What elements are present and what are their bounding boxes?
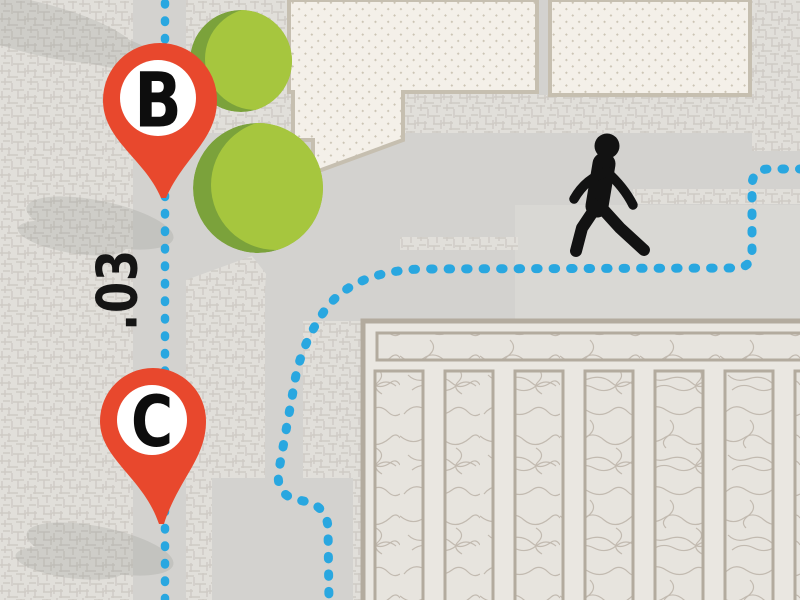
crosswalk-band xyxy=(400,237,518,250)
pin-b-label: B xyxy=(134,57,181,146)
building-hatched-right xyxy=(550,0,750,95)
park-block xyxy=(363,321,800,600)
ground-corner-patch xyxy=(752,133,800,151)
crosswalk-band xyxy=(633,189,800,204)
sidewalk-step xyxy=(515,205,800,321)
map-illustration: .03 B C xyxy=(0,0,800,600)
pin-c-label: C xyxy=(131,383,173,464)
park-hedge-row xyxy=(377,333,800,360)
distance-label: .03 xyxy=(84,249,149,331)
